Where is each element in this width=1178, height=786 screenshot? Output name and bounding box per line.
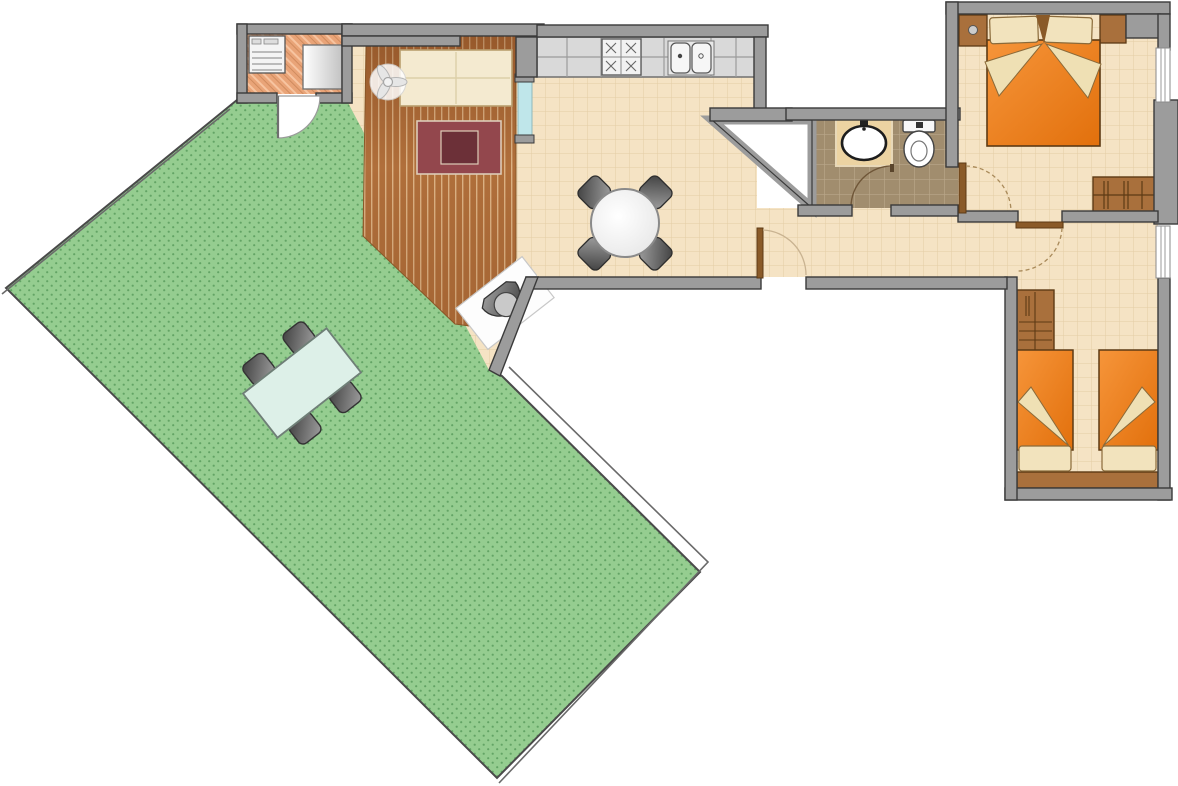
double-bed (985, 15, 1101, 146)
wall (237, 24, 352, 34)
wall (1062, 211, 1158, 222)
pillow-right (1044, 16, 1093, 44)
single-bed-right (1099, 350, 1158, 471)
laundry (247, 34, 343, 94)
washing-machine (249, 36, 285, 73)
wall (1154, 100, 1178, 224)
kitchen-counter (537, 37, 766, 77)
wall (754, 37, 766, 112)
wall (806, 277, 1007, 289)
wall (946, 2, 1170, 14)
right-wall-window-lower (1156, 226, 1170, 278)
single-bed-left (1017, 350, 1073, 471)
wall (710, 108, 792, 121)
floor-plan-svg (0, 0, 1178, 786)
wall (1158, 278, 1170, 500)
bedroom-twin (1017, 216, 1158, 490)
wall (1005, 277, 1017, 500)
laundry-cabinet (303, 45, 342, 89)
wall (891, 205, 958, 216)
wall (342, 24, 544, 36)
wall (516, 37, 537, 77)
wall (1158, 14, 1170, 50)
toilet (903, 120, 935, 167)
vanity-sink (836, 118, 892, 166)
bathroom-door-hinge (890, 164, 894, 172)
wall (1005, 488, 1172, 500)
wall (798, 205, 852, 216)
wall (237, 24, 247, 103)
wall (237, 93, 277, 103)
nightstand-right (1100, 15, 1126, 43)
bedroom-master (958, 14, 1158, 214)
pillow (1102, 446, 1156, 471)
pillow-left (990, 16, 1039, 44)
right-wall-window-upper (1156, 48, 1170, 102)
wardrobe (1017, 290, 1054, 353)
stove (602, 39, 641, 75)
dresser (1093, 177, 1155, 213)
wall (526, 277, 761, 289)
sofa (400, 50, 512, 106)
bathroom (806, 116, 958, 208)
wall (342, 36, 460, 46)
nightstand-left-knob (969, 26, 978, 35)
double-sink (668, 41, 714, 75)
floor-plan-canvas (0, 0, 1178, 786)
dining-table (591, 189, 659, 257)
glass-panel (515, 74, 534, 143)
wall (958, 211, 1018, 222)
wall (1126, 14, 1160, 38)
pillow (1019, 446, 1071, 471)
dining-set (576, 174, 675, 273)
coffee-table (441, 131, 478, 164)
wall (537, 25, 768, 37)
headboard-bench (1017, 472, 1158, 488)
wall (946, 2, 958, 167)
wall (786, 108, 960, 120)
